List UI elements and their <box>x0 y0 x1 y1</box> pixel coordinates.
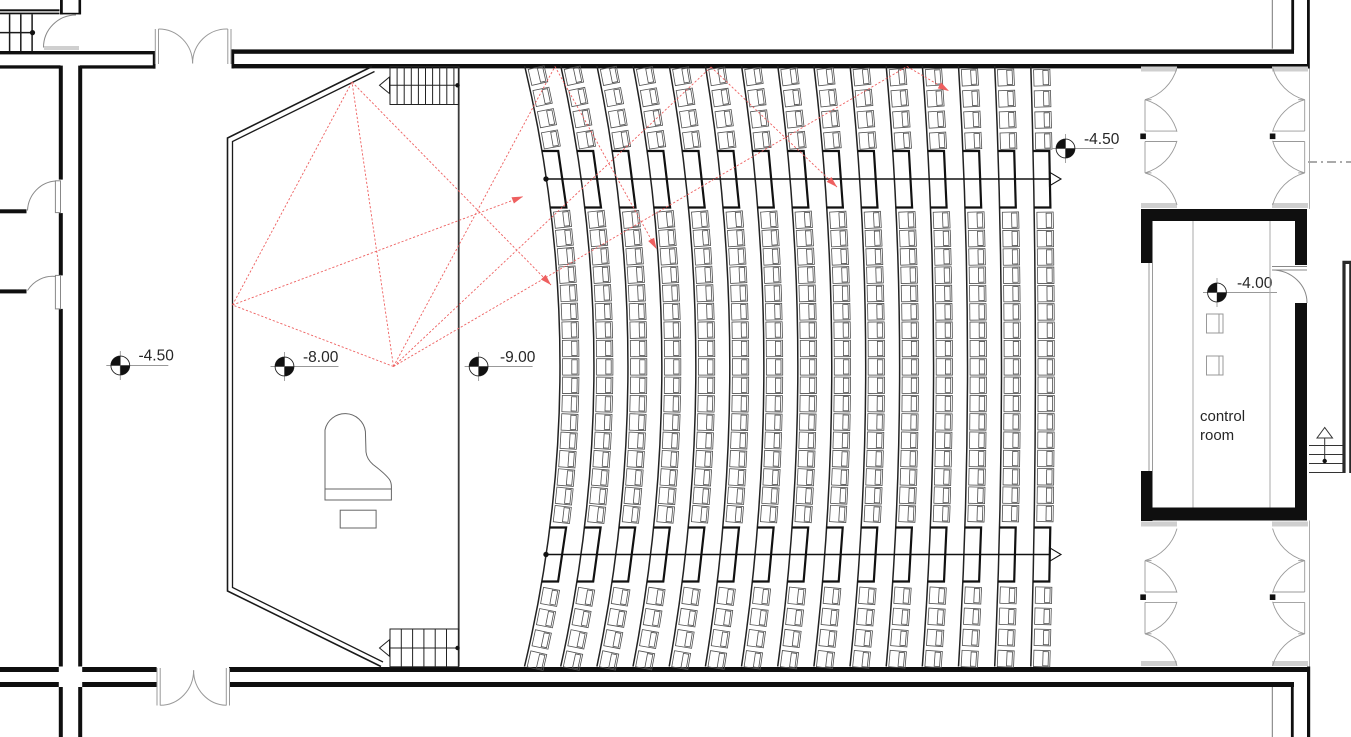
svg-text:-4.00: -4.00 <box>1237 275 1273 292</box>
svg-text:room: room <box>1200 427 1234 444</box>
svg-text:control: control <box>1200 408 1245 425</box>
svg-text:-4.50: -4.50 <box>1084 131 1120 148</box>
svg-text:-4.50: -4.50 <box>139 348 175 365</box>
svg-text:-8.00: -8.00 <box>303 349 339 366</box>
svg-text:-9.00: -9.00 <box>500 349 536 366</box>
